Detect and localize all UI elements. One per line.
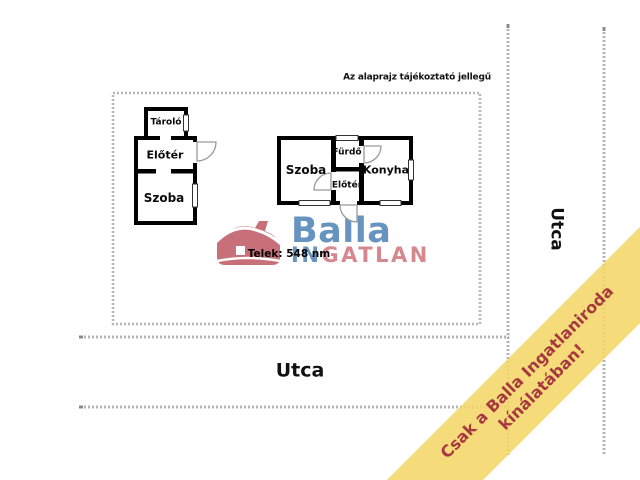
door-arc-main-entrance [340,205,357,222]
room-label-bathroom: Fürdő [332,149,361,158]
window-bath-top [336,136,358,141]
door-arc-left-entrance [197,142,216,161]
room-label-room-right: Szoba [286,164,327,176]
disclaimer-text: Az alaprajz tájékoztató jellegű [343,74,491,83]
room-label-hall-right: Előtér [332,182,362,191]
room-label-room-left: Szoba [144,192,185,204]
floorplan-page: Balla INGATLAN [0,0,640,480]
plot-size-label: Telek: 548 nm [248,249,330,260]
room-label-storage: Tároló [151,119,182,128]
window-room-bottom [299,201,330,206]
door-gap-storage [160,136,171,142]
room-label-hall-left: Előtér [147,150,184,161]
window-kitchen-bottom [380,201,401,206]
door-gap-hall-room [156,169,171,175]
window-storage [184,115,189,131]
window-room-left [193,184,198,207]
room-label-kitchen: Konyha [363,165,409,176]
wall-bath-hall [336,167,359,172]
window-kitchen-right [409,160,414,180]
